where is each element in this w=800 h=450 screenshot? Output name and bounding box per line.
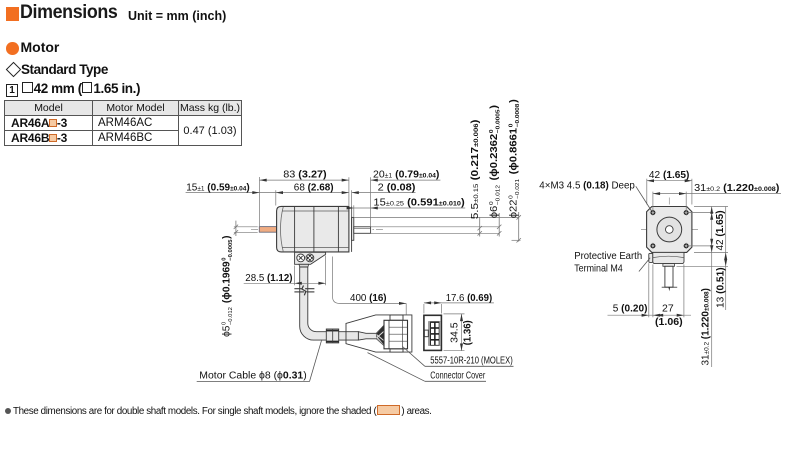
svg-text:Motor Cable ϕ8 (ϕ0.31): Motor Cable ϕ8 (ϕ0.31) [199,371,306,382]
svg-text:(1.06): (1.06) [655,317,683,328]
svg-text:ϕ60−0.012 (ϕ0.23620−0.0005): ϕ60−0.012 (ϕ0.23620−0.0005) [488,105,501,219]
svg-text:2 (0.08): 2 (0.08) [378,183,416,193]
svg-text:5 (0.20): 5 (0.20) [613,304,648,315]
svg-text:13 (0.51): 13 (0.51) [716,267,727,308]
svg-text:68 (2.68): 68 (2.68) [294,182,334,193]
svg-text:5.5±0.15 (0.217±0.006): 5.5±0.15 (0.217±0.006) [470,119,481,219]
svg-text:34.5: 34.5 [450,322,461,343]
svg-text:ϕ220−0.021 (ϕ0.86610−0.0008): ϕ220−0.021 (ϕ0.86610−0.0008) [508,99,521,219]
svg-text:31±0.2 (1.220±0.008): 31±0.2 (1.220±0.008) [694,183,779,193]
svg-text:15±0.25 (0.591±0.010): 15±0.25 (0.591±0.010) [373,197,464,208]
svg-text:5557-10R-210 (MOLEX): 5557-10R-210 (MOLEX) [430,355,512,366]
svg-text:(1.36): (1.36) [462,320,473,345]
svg-text:Protective Earth: Protective Earth [574,251,642,262]
svg-text:31±0.2 (1.220±0.008): 31±0.2 (1.220±0.008) [700,288,711,365]
svg-text:42 (1.65): 42 (1.65) [649,170,689,181]
svg-text:17.6 (0.69): 17.6 (0.69) [446,293,492,304]
svg-text:400 (16): 400 (16) [350,293,387,304]
svg-text:28.5 (1.12): 28.5 (1.12) [245,273,292,284]
svg-text:ϕ50−0.012 (ϕ0.19690−0.0005): ϕ50−0.012 (ϕ0.19690−0.0005) [221,236,234,337]
svg-text:Terminal M4: Terminal M4 [574,263,623,275]
svg-text:4×M3 4.5 (0.18) Deep: 4×M3 4.5 (0.18) Deep [539,180,635,191]
svg-text:15±1 (0.59±0.04): 15±1 (0.59±0.04) [186,182,249,193]
svg-text:Connector Cover: Connector Cover [430,370,485,381]
svg-text:42 (1.65): 42 (1.65) [715,210,726,250]
svg-text:27: 27 [662,304,674,315]
svg-text:83 (3.27): 83 (3.27) [283,170,326,181]
svg-text:20±1 (0.79±0.04): 20±1 (0.79±0.04) [373,170,439,181]
